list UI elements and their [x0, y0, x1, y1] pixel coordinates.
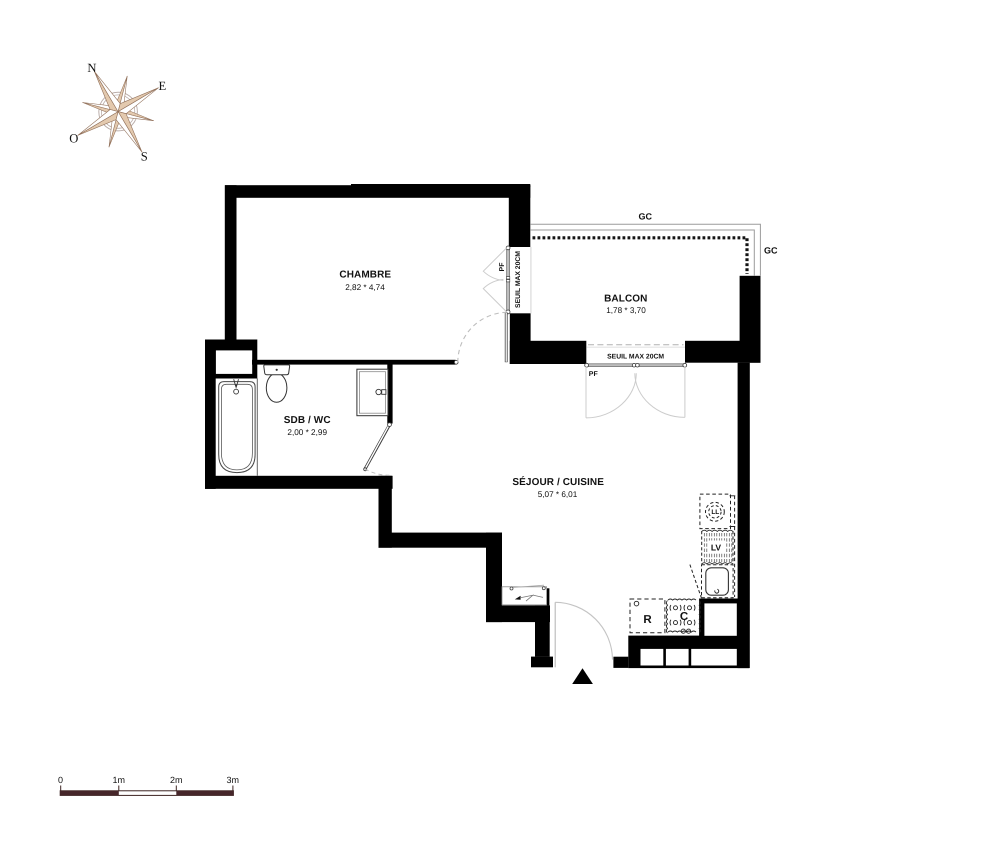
svg-text:1m: 1m	[113, 775, 126, 785]
svg-text:GC: GC	[764, 246, 778, 256]
svg-text:BALCON: BALCON	[604, 294, 647, 305]
svg-text:SÉJOUR / CUISINE: SÉJOUR / CUISINE	[512, 476, 604, 488]
svg-text:2,00 * 2,99: 2,00 * 2,99	[287, 428, 327, 437]
svg-text:GC: GC	[638, 212, 652, 222]
svg-text:SEUIL MAX 20CM: SEUIL MAX 20CM	[607, 354, 664, 361]
svg-text:SEUIL MAX 20CM: SEUIL MAX 20CM	[515, 251, 522, 308]
svg-text:2m: 2m	[170, 775, 183, 785]
svg-text:5,07 * 6,01: 5,07 * 6,01	[538, 490, 578, 499]
svg-text:S: S	[141, 150, 148, 164]
svg-text:PF: PF	[499, 262, 506, 272]
svg-text:1,78 * 3,70: 1,78 * 3,70	[606, 306, 646, 315]
svg-text:E: E	[159, 79, 167, 93]
svg-text:LL: LL	[711, 509, 719, 516]
svg-text:R: R	[643, 614, 652, 626]
svg-text:N: N	[87, 61, 96, 75]
svg-text:PF: PF	[589, 371, 599, 378]
svg-text:SDB / WC: SDB / WC	[284, 415, 331, 426]
svg-text:0: 0	[58, 775, 63, 785]
svg-text:C: C	[680, 611, 688, 623]
svg-text:2,82 * 4,74: 2,82 * 4,74	[345, 283, 385, 292]
svg-text:CHAMBRE: CHAMBRE	[339, 269, 391, 280]
svg-text:3m: 3m	[227, 775, 240, 785]
svg-text:O: O	[69, 131, 78, 145]
svg-text:LV: LV	[711, 543, 722, 553]
